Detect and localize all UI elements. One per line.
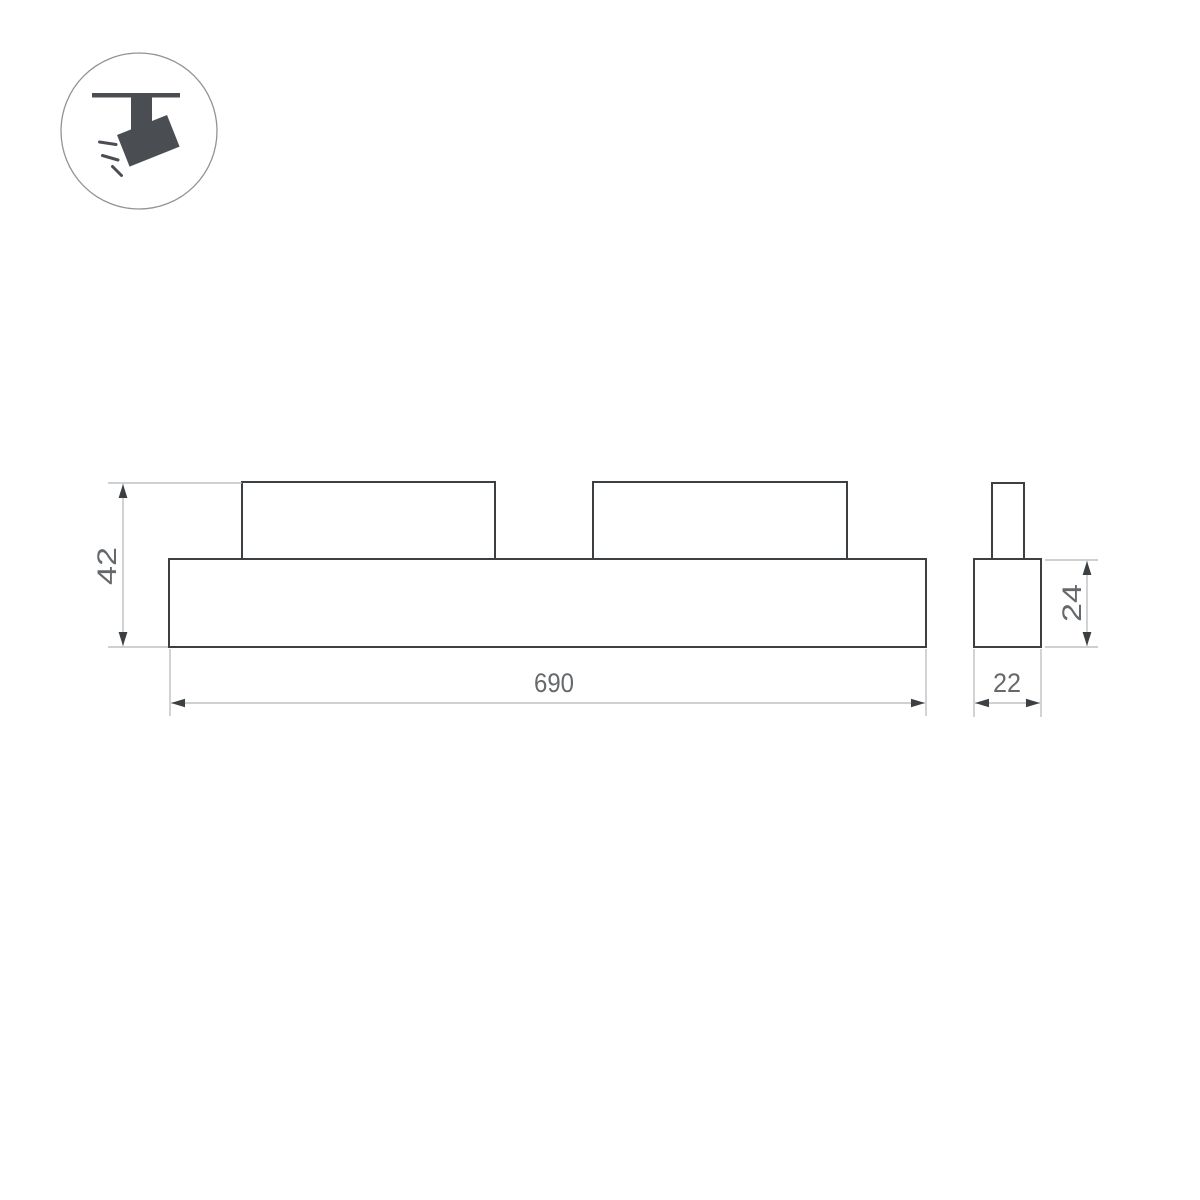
dimension-side-width-22: 22 xyxy=(974,649,1041,717)
dimension-length-690: 690 xyxy=(170,649,926,716)
dim-label-side-width: 22 xyxy=(993,668,1021,698)
side-stem xyxy=(992,483,1024,559)
arrowhead-left-icon xyxy=(975,699,989,708)
arrowhead-down-icon xyxy=(1083,632,1092,646)
front-top-block-right xyxy=(593,482,847,559)
dim-label-length: 690 xyxy=(534,668,574,698)
dimension-drawing: 42 690 24 22 xyxy=(0,0,1200,1200)
arrowhead-right-icon xyxy=(911,699,925,708)
front-body xyxy=(169,559,926,647)
page: 42 690 24 22 xyxy=(0,0,1200,1200)
front-top-block-left xyxy=(242,482,495,559)
dimension-side-height-24: 24 xyxy=(1045,560,1098,647)
arrowhead-up-icon xyxy=(1083,561,1092,575)
arrowhead-up-icon xyxy=(119,484,128,498)
track-spotlight-icon xyxy=(61,53,217,209)
front-view xyxy=(169,482,926,647)
side-view xyxy=(974,483,1041,647)
arrowhead-down-icon xyxy=(119,632,128,646)
dim-label-height: 42 xyxy=(92,547,122,585)
dim-label-side-height: 24 xyxy=(1057,584,1087,622)
arrowhead-right-icon xyxy=(1026,699,1040,708)
side-body xyxy=(974,559,1041,647)
arrowhead-left-icon xyxy=(171,699,185,708)
